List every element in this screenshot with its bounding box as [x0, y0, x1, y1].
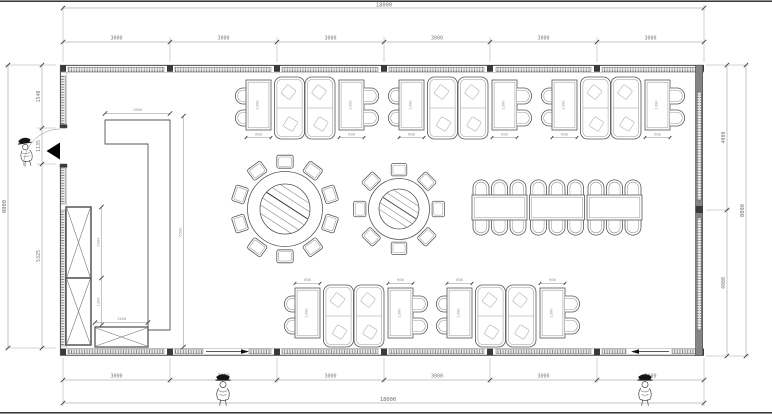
dim-top-seg-1: 3000 [110, 36, 122, 42]
dim-right-total: 8000 [740, 204, 746, 217]
dim-table-width: 600 [501, 131, 509, 136]
dim-left-seg-1: 1540 [36, 90, 42, 102]
dim-bottom-seg-4: 3000 [431, 374, 443, 380]
dim-bottom-total: 18000 [380, 397, 396, 403]
dim-table-length: 1300 [408, 100, 413, 110]
right-wall [696, 65, 703, 355]
dim-table-width: 600 [397, 277, 405, 282]
dim-table-length: 1300 [456, 308, 461, 318]
bottom-door-arrow-left [206, 349, 249, 354]
dim-table-width: 600 [549, 277, 557, 282]
person-figure-bottom-left [215, 374, 230, 406]
banquet-table [472, 180, 642, 235]
dim-top-seg-4: 3000 [431, 36, 443, 42]
round-table-8-seats [354, 164, 445, 255]
dim-table-length: 1300 [549, 308, 554, 318]
banquet-table-segments [472, 195, 642, 220]
dim-partition-height: 6500 [178, 227, 183, 237]
dim-table-length: 1300 [654, 100, 659, 110]
floor-plan-canvas: 18000 3000 3000 3000 3000 3000 3000 3000… [0, 0, 772, 414]
top-wall [60, 65, 704, 72]
dim-table-length: 1300 [501, 100, 506, 110]
dim-bottom-seg-3: 3000 [324, 374, 336, 380]
dim-table-width: 600 [304, 277, 312, 282]
dim-bottom-seg-1: 3000 [110, 374, 122, 380]
dim-table-length: 1300 [348, 100, 353, 110]
entry-door [24, 128, 68, 166]
bottom-wall [60, 349, 704, 356]
bottom-door-arrow-right [631, 349, 669, 354]
dim-left-total: 8000 [2, 200, 8, 213]
dim-table-length: 1300 [397, 308, 402, 318]
dim-cabinet-lower: 1300 [96, 297, 101, 307]
dim-left-seg-3: 5325 [36, 250, 42, 262]
round-table-10-seats [231, 155, 338, 263]
dim-table-width: 600 [408, 131, 416, 136]
dim-table-length: 1300 [255, 100, 260, 110]
dim-bottom-seg-5: 3000 [537, 374, 549, 380]
dim-table-width: 600 [348, 131, 356, 136]
dim-right-seg-2: 4000 [721, 277, 727, 289]
dim-table-length: 1300 [304, 308, 309, 318]
dim-top-seg-6: 3000 [644, 36, 656, 42]
dim-cabinet-upper: 2000 [96, 237, 101, 247]
dim-top-seg-5: 3000 [537, 36, 549, 42]
dim-top-seg-3: 3000 [324, 36, 336, 42]
entry-partition-wall: 1800 6500 [103, 107, 186, 349]
person-figure-bottom-right [637, 374, 652, 406]
dim-right-seg-1: 4000 [721, 131, 727, 143]
dim-low-cabinet-width: 1500 [117, 316, 127, 321]
dim-left-seg-2: 1135 [36, 140, 42, 152]
entry-direction-arrow [47, 143, 61, 160]
dim-table-width: 600 [456, 277, 464, 282]
dim-partition-width: 1800 [133, 107, 143, 112]
tall-cabinet: 2000 1300 [66, 205, 104, 345]
dim-table-width: 600 [255, 131, 263, 136]
dim-table-length: 1300 [561, 100, 566, 110]
dim-top-total: 18000 [376, 2, 392, 8]
dim-top-seg-2: 3000 [217, 36, 229, 42]
dim-table-width: 600 [654, 131, 662, 136]
dim-table-width: 600 [561, 131, 569, 136]
